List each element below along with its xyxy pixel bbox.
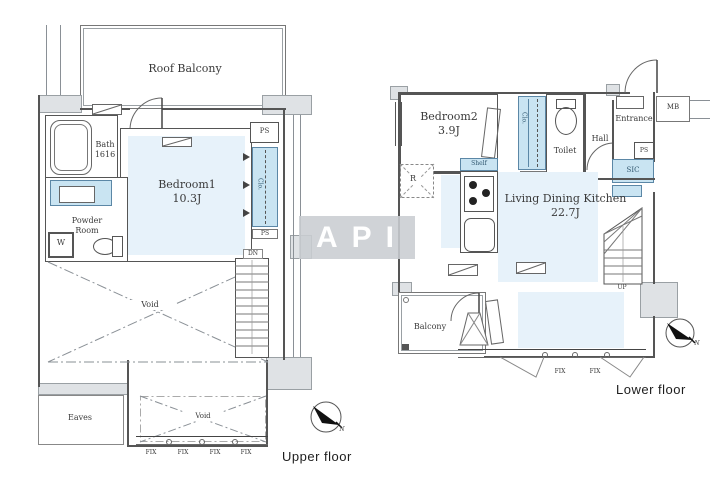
wall [653, 192, 655, 284]
closet-lower-label: Clo. [520, 112, 528, 124]
stove-icon [464, 176, 494, 212]
bedroom2-label: Bedroom23.9J [404, 110, 494, 138]
vanity-icon [50, 180, 112, 206]
eaves-line [46, 25, 47, 97]
lower-floor-caption: Lower floor [616, 382, 686, 397]
fix-label: FIX [141, 449, 161, 457]
ps-entry-label: PS [634, 147, 654, 155]
wall [266, 360, 268, 447]
wall-block [640, 282, 678, 318]
compass-n-label: N [692, 340, 702, 348]
washer-label: W [48, 238, 74, 248]
wall-line [690, 118, 710, 119]
balcony-label: Balcony [404, 322, 456, 332]
stairs-up [604, 206, 642, 284]
wall-block [262, 95, 312, 115]
window-symbol [162, 137, 192, 147]
compass-n-label: N [337, 426, 347, 434]
sink-icon [464, 218, 495, 252]
wall [653, 316, 655, 358]
closet-door-mark [243, 181, 250, 189]
floorplan-canvas: Roof Balcony Bath1616 Laundry pipe Bedro… [0, 0, 710, 479]
wall [38, 95, 40, 387]
wall-block [38, 95, 82, 113]
ps-label: PS [250, 127, 279, 136]
counter-symbol [448, 264, 478, 276]
entrance-door-arc [624, 58, 658, 94]
wall [128, 445, 268, 447]
wall-block [38, 383, 128, 395]
closet-door-mark [243, 209, 250, 217]
mb-label: MB [656, 103, 690, 112]
neighbor-wall-line [293, 115, 294, 357]
toilet-tank-icon [112, 236, 123, 257]
compass-icon [305, 398, 349, 442]
wall [283, 110, 285, 360]
eaves-label: Eaves [55, 413, 105, 423]
window-symbol [92, 104, 122, 115]
compass-icon [660, 316, 704, 360]
bathtub-icon [50, 120, 92, 175]
fix-label: FIX [585, 368, 605, 376]
up-label: UP [612, 284, 632, 292]
entrance-label: Entrance [612, 114, 656, 124]
entrance-step [616, 96, 644, 109]
wall-block [606, 84, 620, 96]
bedroom1-label: Bedroom110.3J [137, 178, 237, 206]
drain-icon [402, 344, 409, 350]
shelf-label: Shelf [460, 160, 498, 168]
counter-symbol [516, 262, 546, 274]
ps-label-side: PS [252, 229, 278, 239]
toilet-label: Toilet [544, 146, 586, 156]
ldk-floor [518, 292, 624, 348]
wall [127, 360, 129, 447]
fix-label: FIX [550, 368, 570, 376]
upper-floor-caption: Upper floor [282, 449, 352, 464]
eaves-line [60, 25, 61, 97]
fix-label: FIX [236, 449, 256, 457]
faucet-icon [403, 297, 409, 303]
sic-label: SIC [612, 166, 654, 175]
wall [162, 108, 286, 110]
balcony-door-arc [129, 97, 163, 131]
stairs-down [235, 258, 269, 358]
window-band [136, 436, 268, 445]
hall-door-arc [586, 142, 614, 170]
closet-upper-label: Clo. [256, 178, 264, 190]
bath-label: Bath1616 [88, 140, 122, 160]
ldk-floor [498, 172, 598, 282]
window-swing [598, 357, 646, 379]
bedroom2-window [395, 102, 402, 146]
window-swing [500, 357, 548, 379]
fix-label: FIX [205, 449, 225, 457]
closet-lower [518, 96, 546, 170]
fridge-label: R [406, 174, 420, 184]
wall-block [266, 357, 312, 390]
fix-label: FIX [173, 449, 193, 457]
wall-line [690, 100, 710, 101]
roof-balcony-label: Roof Balcony [125, 62, 245, 76]
closet-door-mark [243, 153, 250, 161]
toilet-icon [555, 107, 577, 135]
dn-label: DN [243, 249, 263, 259]
watermark: API [299, 216, 415, 259]
void-lower-label: Void [180, 412, 226, 421]
ldk-floor [441, 175, 460, 248]
void-label: Void [125, 300, 175, 310]
